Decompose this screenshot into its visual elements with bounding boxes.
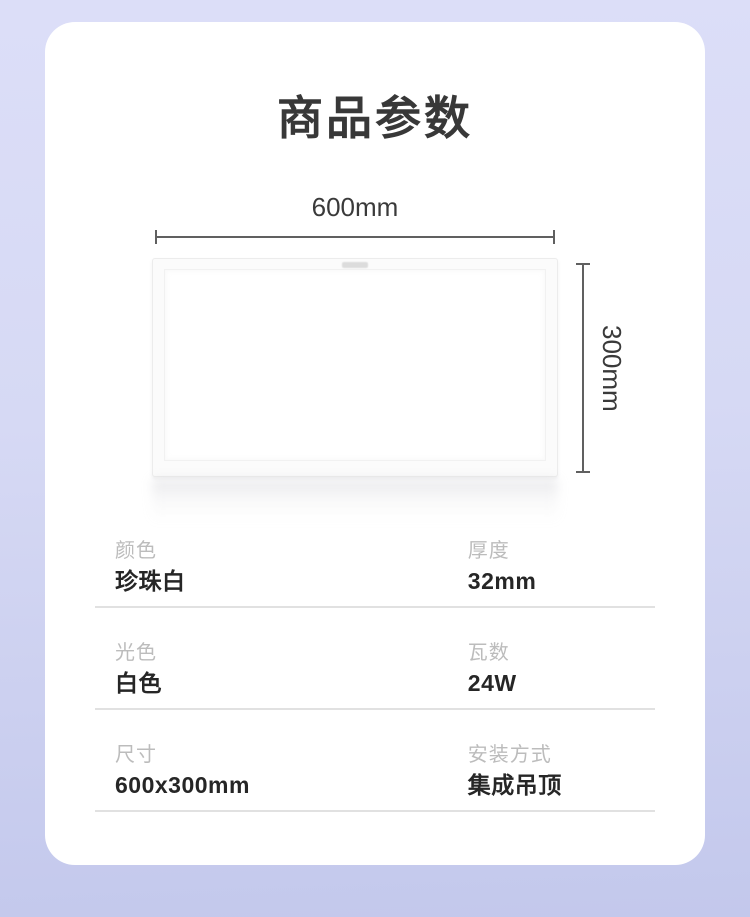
spec-row-lightcolor-wattage: 光色 白色 瓦数 24W — [95, 608, 655, 710]
height-dimension-label: 300mm — [596, 263, 627, 473]
spec-value-thickness: 32mm — [468, 568, 655, 594]
width-dimension-line — [155, 236, 555, 238]
spec-cell-light-color: 光色 白色 — [95, 608, 448, 708]
page-background: 商品参数 600mm 300mm 颜色 珍珠白 厚度 — [0, 0, 750, 917]
spec-label-size: 尺寸 — [115, 744, 448, 766]
dimension-tick — [576, 471, 590, 473]
spec-cell-size: 尺寸 600x300mm — [95, 710, 448, 810]
spec-cell-wattage: 瓦数 24W — [448, 608, 655, 708]
spec-label-thickness: 厚度 — [468, 540, 655, 562]
spec-value-installation: 集成吊顶 — [468, 772, 655, 798]
page-title: 商品参数 — [45, 82, 705, 148]
spec-value-wattage: 24W — [468, 670, 655, 696]
dimension-tick — [155, 230, 157, 244]
dimension-tick — [576, 263, 590, 265]
spec-label-wattage: 瓦数 — [468, 642, 655, 664]
spec-label-color: 颜色 — [115, 540, 448, 562]
spec-table: 颜色 珍珠白 厚度 32mm 光色 白色 瓦数 24W — [95, 506, 655, 812]
width-dimension-label: 600mm — [155, 192, 555, 223]
spec-label-installation: 安装方式 — [468, 744, 655, 766]
spec-row-size-installation: 尺寸 600x300mm 安装方式 集成吊顶 — [95, 710, 655, 812]
spec-value-size: 600x300mm — [115, 772, 448, 798]
spec-row-color-thickness: 颜色 珍珠白 厚度 32mm — [95, 506, 655, 608]
spec-value-light-color: 白色 — [115, 670, 448, 696]
dimension-tick — [553, 230, 555, 244]
spec-cell-installation: 安装方式 集成吊顶 — [448, 710, 655, 810]
brand-logo — [342, 262, 368, 268]
spec-value-color: 珍珠白 — [115, 568, 448, 594]
spec-cell-color: 颜色 珍珠白 — [95, 506, 448, 606]
product-parameters-card: 商品参数 600mm 300mm 颜色 珍珠白 厚度 — [45, 22, 705, 865]
spec-cell-thickness: 厚度 32mm — [448, 506, 655, 606]
led-panel-diffuser — [164, 269, 546, 461]
led-panel-image — [152, 258, 558, 477]
spec-label-light-color: 光色 — [115, 642, 448, 664]
height-dimension-line — [582, 263, 584, 473]
